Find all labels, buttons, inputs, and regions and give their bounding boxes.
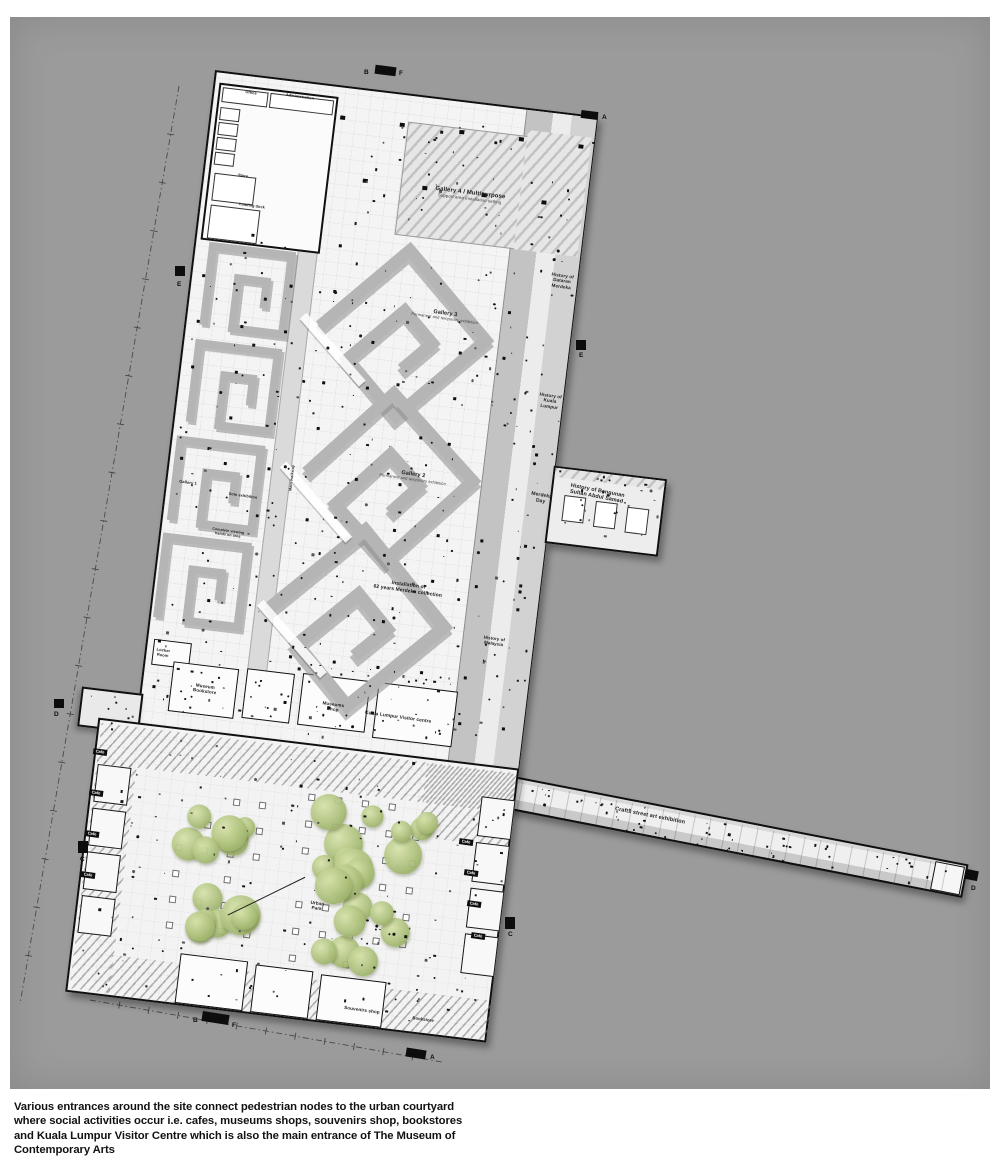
person-dot: [448, 678, 450, 680]
person-dot: [485, 355, 488, 358]
meander-gallery-walls: [148, 529, 252, 632]
person-dot: [449, 890, 451, 892]
person-dot: [200, 786, 202, 788]
person-dot: [584, 510, 586, 512]
small-room: [219, 107, 240, 122]
person-dot: [207, 559, 209, 561]
person-dot: [558, 420, 560, 422]
person-dot: [408, 219, 410, 221]
person-dot: [375, 168, 378, 171]
corridor-tick: [721, 821, 727, 849]
person-dot: [394, 998, 396, 1000]
column-dot: [459, 351, 463, 355]
souvenirs-shop-box: [250, 964, 313, 1019]
person-dot: [352, 671, 354, 673]
person-dot: [302, 380, 305, 383]
exhibit-box: [561, 495, 586, 523]
person-dot: [492, 819, 494, 821]
planter: [322, 904, 330, 912]
corridor-tick: [548, 788, 554, 816]
person-dot: [727, 849, 729, 851]
column-dot: [339, 244, 343, 248]
caption-line: Various entrances around the site connec…: [14, 1100, 494, 1114]
person-dot: [366, 444, 369, 447]
person-dot: [180, 740, 182, 742]
person-dot: [377, 785, 379, 787]
person-dot: [287, 467, 290, 470]
person-dot: [559, 470, 562, 473]
cafe-box: [88, 808, 126, 850]
column-dot: [459, 130, 464, 135]
person-dot: [266, 509, 269, 512]
person-dot: [440, 131, 443, 134]
person-dot: [120, 790, 123, 793]
person-dot: [254, 681, 256, 683]
person-dot: [428, 173, 430, 175]
column-dot: [180, 457, 184, 461]
person-dot: [500, 852, 503, 855]
cafe-box: [466, 888, 505, 932]
person-dot: [436, 835, 439, 838]
person-dot: [111, 728, 113, 730]
person-dot: [357, 696, 359, 698]
person-dot: [607, 494, 610, 497]
person-dot: [415, 989, 417, 991]
person-dot: [180, 754, 182, 756]
person-dot: [516, 557, 519, 560]
person-dot: [366, 919, 369, 922]
person-dot: [548, 795, 550, 797]
person-dot: [185, 431, 188, 434]
person-dot: [580, 801, 582, 803]
person-dot: [180, 426, 182, 428]
column-dot: [475, 585, 479, 589]
person-dot: [439, 190, 442, 193]
corridor-tick: [752, 828, 758, 856]
person-dot: [202, 552, 203, 553]
meander-gallery-walls: [162, 432, 266, 535]
column-dot: [448, 443, 452, 447]
person-dot: [513, 599, 515, 601]
column-dot: [464, 676, 468, 680]
person-dot: [458, 713, 461, 716]
planter: [259, 802, 267, 810]
column-dot: [333, 660, 337, 664]
person-dot: [410, 297, 412, 299]
person-dot: [316, 672, 318, 674]
person-dot: [181, 799, 183, 801]
person-dot: [413, 590, 416, 593]
person-dot: [251, 715, 254, 718]
person-dot: [349, 325, 351, 327]
person-dot: [633, 829, 635, 831]
person-dot: [477, 551, 480, 554]
person-dot: [909, 862, 911, 864]
person-dot: [235, 999, 237, 1001]
person-dot: [447, 723, 449, 725]
person-dot: [515, 488, 517, 490]
person-dot: [204, 469, 207, 472]
person-dot: [235, 969, 238, 972]
person-dot: [158, 793, 160, 795]
planter: [223, 876, 231, 884]
person-dot: [443, 556, 445, 558]
person-dot: [433, 954, 436, 957]
person-dot: [571, 294, 574, 297]
person-dot: [545, 794, 547, 796]
person-dot: [229, 263, 231, 265]
person-dot: [260, 680, 262, 682]
sultan-abdul-samad-wing: [545, 466, 668, 557]
person-dot: [531, 182, 533, 184]
column-dot: [207, 599, 211, 603]
person-dot: [399, 158, 402, 161]
small-room: [214, 152, 235, 167]
person-dot: [355, 263, 358, 266]
person-dot: [551, 294, 553, 296]
person-dot: [241, 945, 243, 947]
person-dot: [638, 823, 640, 825]
person-dot: [406, 321, 409, 324]
person-dot: [298, 367, 301, 370]
person-dot: [261, 272, 263, 274]
person-dot: [105, 983, 108, 986]
person-dot: [527, 514, 529, 516]
column-dot: [535, 453, 539, 457]
planter: [301, 847, 309, 855]
person-dot: [396, 320, 398, 322]
person-dot: [400, 766, 402, 768]
person-dot: [189, 706, 192, 709]
person-dot: [513, 398, 515, 400]
column-dot: [235, 371, 239, 375]
planter: [252, 853, 260, 861]
person-dot: [242, 885, 245, 888]
person-dot: [347, 482, 349, 484]
person-dot: [383, 309, 385, 311]
person-dot: [592, 141, 595, 144]
planter: [295, 901, 303, 909]
person-dot: [249, 882, 252, 885]
person-dot: [291, 301, 293, 303]
person-dot: [728, 833, 731, 836]
tree-grove: [160, 788, 280, 953]
person-dot: [304, 647, 306, 649]
person-dot: [493, 654, 495, 656]
person-dot: [352, 394, 354, 396]
person-dot: [166, 695, 169, 698]
person-dot: [273, 991, 275, 993]
person-dot: [190, 685, 192, 687]
column-dot: [422, 186, 427, 191]
person-dot: [317, 822, 319, 824]
person-dot: [319, 643, 320, 644]
person-dot: [323, 518, 325, 520]
person-dot: [706, 823, 708, 825]
person-dot: [475, 894, 477, 896]
exhibit-box: [624, 507, 649, 535]
person-dot: [474, 999, 476, 1001]
person-dot: [495, 225, 497, 227]
person-dot: [298, 667, 301, 670]
person-dot: [342, 581, 344, 583]
column-dot: [480, 539, 484, 543]
person-dot: [208, 995, 209, 996]
person-dot: [485, 644, 487, 646]
person-dot: [250, 696, 252, 698]
person-dot: [234, 282, 236, 284]
person-dot: [387, 896, 389, 898]
column-dot: [431, 580, 435, 584]
person-dot: [542, 788, 544, 790]
person-dot: [297, 805, 298, 806]
person-dot: [425, 152, 427, 154]
person-dot: [581, 489, 584, 492]
person-dot: [328, 859, 330, 861]
person-dot: [216, 406, 218, 408]
person-dot: [696, 843, 698, 845]
cafe-box: [83, 851, 121, 893]
planter: [288, 954, 296, 962]
corridor-tick: [799, 837, 805, 865]
person-dot: [475, 860, 477, 862]
person-dot: [285, 611, 288, 614]
person-dot: [641, 490, 643, 492]
person-dot: [191, 473, 193, 475]
person-dot: [430, 267, 432, 269]
caption-line: Contemporary Arts: [14, 1143, 494, 1157]
column-dot: [371, 341, 375, 345]
person-dot: [439, 676, 441, 678]
person-dot: [529, 430, 531, 432]
person-dot: [831, 866, 833, 868]
column-dot: [453, 397, 457, 401]
person-dot: [440, 283, 442, 285]
caption-line: where social activities occur i.e. cafes…: [14, 1114, 494, 1128]
cafe-box: [460, 933, 499, 977]
person-dot: [378, 789, 380, 791]
person-dot: [191, 484, 194, 487]
person-dot: [561, 261, 562, 262]
person-dot: [410, 467, 413, 470]
person-dot: [654, 832, 656, 834]
person-dot: [510, 326, 512, 328]
person-dot: [350, 373, 352, 375]
person-dot: [825, 848, 827, 850]
person-dot: [393, 933, 396, 936]
person-dot: [182, 941, 185, 944]
corridor-end-pavilion: [930, 861, 965, 895]
person-dot: [246, 475, 249, 478]
person-dot: [190, 812, 192, 814]
person-dot: [373, 199, 376, 202]
person-dot: [209, 489, 211, 491]
column-dot: [382, 620, 386, 624]
person-dot: [409, 928, 411, 930]
column-dot: [196, 320, 200, 324]
column-dot: [305, 518, 309, 522]
person-dot: [394, 642, 396, 644]
person-dot: [543, 804, 546, 807]
person-dot: [453, 719, 454, 720]
person-dot: [218, 663, 221, 666]
person-dot: [218, 676, 220, 678]
column-dot: [152, 685, 156, 689]
person-dot: [616, 816, 618, 818]
person-dot: [828, 856, 830, 858]
person-dot: [213, 854, 215, 856]
person-dot: [165, 645, 167, 647]
person-dot: [238, 930, 241, 933]
person-dot: [359, 334, 362, 337]
person-dot: [455, 182, 458, 185]
person-dot: [365, 301, 368, 304]
person-dot: [220, 650, 222, 652]
person-dot: [433, 681, 436, 684]
meander-gallery-walls: [194, 238, 298, 339]
column-dot: [502, 357, 506, 361]
person-dot: [220, 974, 222, 976]
person-dot: [656, 516, 659, 519]
person-dot: [157, 679, 160, 682]
person-dot: [435, 872, 437, 874]
person-dot: [428, 316, 430, 318]
person-dot: [905, 858, 908, 861]
urban-courtyard-block: [65, 718, 519, 1043]
person-dot: [393, 910, 396, 913]
person-dot: [643, 820, 646, 823]
person-dot: [461, 990, 463, 992]
person-dot: [437, 690, 440, 693]
person-dot: [284, 247, 286, 249]
person-dot: [502, 813, 505, 816]
bookstore-box: [316, 974, 387, 1028]
person-dot: [491, 401, 493, 403]
person-dot: [425, 736, 428, 739]
person-dot: [180, 947, 182, 949]
planter: [379, 884, 387, 892]
person-dot: [313, 412, 316, 415]
person-dot: [132, 716, 134, 718]
person-dot: [910, 865, 913, 868]
person-dot: [360, 937, 363, 940]
person-dot: [373, 634, 375, 636]
person-dot: [499, 140, 502, 143]
person-dot: [457, 845, 459, 847]
person-dot: [385, 270, 387, 272]
column-dot: [229, 416, 233, 420]
person-dot: [123, 954, 125, 956]
person-dot: [367, 211, 370, 214]
person-dot: [526, 337, 528, 339]
person-dot: [402, 675, 405, 678]
person-dot: [398, 822, 400, 824]
person-dot: [387, 982, 390, 985]
person-dot: [130, 825, 132, 827]
person-dot: [397, 719, 399, 721]
person-dot: [408, 1020, 410, 1022]
person-dot: [326, 346, 329, 349]
person-dot: [377, 845, 379, 847]
person-dot: [394, 306, 395, 307]
person-dot: [489, 272, 491, 274]
person-dot: [216, 745, 218, 747]
person-dot: [814, 844, 817, 847]
person-dot: [495, 142, 497, 144]
planter: [388, 803, 396, 811]
person-dot: [337, 536, 340, 539]
person-dot: [244, 252, 246, 254]
planter: [255, 827, 263, 835]
person-dot: [608, 479, 610, 481]
person-dot: [249, 987, 251, 989]
person-dot: [416, 1000, 418, 1002]
person-dot: [215, 297, 217, 299]
person-dot: [309, 400, 311, 402]
person-dot: [392, 617, 395, 620]
meander-gallery-walls: [180, 335, 284, 436]
shop-box: [175, 953, 249, 1011]
person-dot: [413, 725, 415, 727]
person-dot: [336, 575, 338, 577]
person-dot: [296, 396, 299, 399]
person-dot: [524, 597, 526, 599]
person-dot: [185, 698, 187, 700]
person-dot: [228, 860, 231, 863]
column-dot: [508, 311, 512, 315]
person-dot: [365, 504, 368, 507]
person-dot: [457, 598, 460, 601]
person-dot: [610, 803, 613, 806]
person-dot: [385, 1010, 388, 1013]
person-dot: [519, 585, 522, 588]
column-dot: [502, 727, 506, 731]
person-dot: [154, 897, 157, 900]
person-dot: [125, 708, 127, 710]
person-dot: [308, 681, 310, 683]
person-dot: [260, 242, 263, 245]
person-dot: [641, 534, 643, 536]
person-dot: [496, 675, 498, 677]
person-dot: [605, 811, 608, 814]
person-dot: [789, 845, 792, 848]
column-dot: [316, 427, 320, 431]
planter: [169, 896, 177, 904]
person-dot: [292, 646, 295, 649]
person-dot: [211, 681, 214, 684]
person-dot: [162, 950, 164, 952]
person-dot: [580, 499, 582, 501]
corridor-tick: [894, 855, 900, 883]
person-dot: [238, 709, 241, 712]
administration-room: [269, 93, 334, 116]
person-dot: [399, 612, 401, 614]
person-dot: [131, 822, 133, 824]
person-dot: [741, 850, 743, 852]
person-dot: [354, 222, 356, 224]
person-dot: [310, 664, 312, 666]
person-dot: [280, 694, 282, 696]
person-dot: [461, 404, 463, 406]
person-dot: [408, 680, 411, 683]
column-dot: [393, 529, 397, 533]
person-dot: [393, 671, 395, 673]
person-dot: [459, 127, 461, 129]
person-dot: [255, 575, 257, 577]
person-dot: [220, 391, 223, 394]
person-dot: [199, 611, 201, 613]
person-dot: [453, 496, 455, 498]
